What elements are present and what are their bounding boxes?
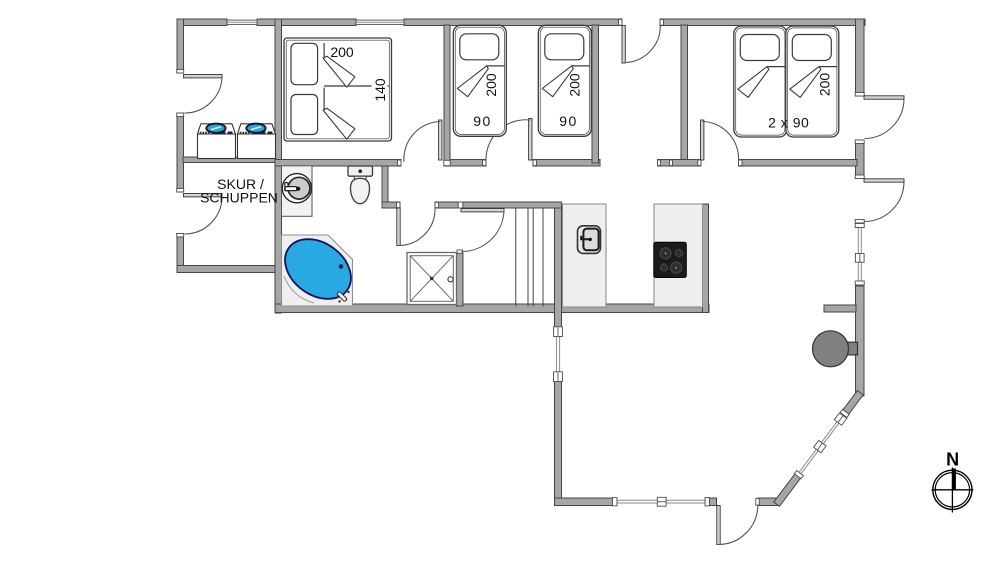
svg-text:200: 200 bbox=[483, 73, 499, 97]
svg-text:SCHUPPEN: SCHUPPEN bbox=[200, 189, 278, 205]
svg-text:200: 200 bbox=[330, 44, 354, 60]
svg-text:2 x 90: 2 x 90 bbox=[768, 114, 809, 130]
svg-text:90: 90 bbox=[559, 113, 578, 129]
svg-text:N: N bbox=[946, 450, 959, 470]
svg-text:200: 200 bbox=[817, 73, 833, 97]
svg-text:90: 90 bbox=[473, 113, 492, 129]
svg-text:200: 200 bbox=[567, 73, 583, 97]
svg-text:140: 140 bbox=[372, 78, 388, 102]
